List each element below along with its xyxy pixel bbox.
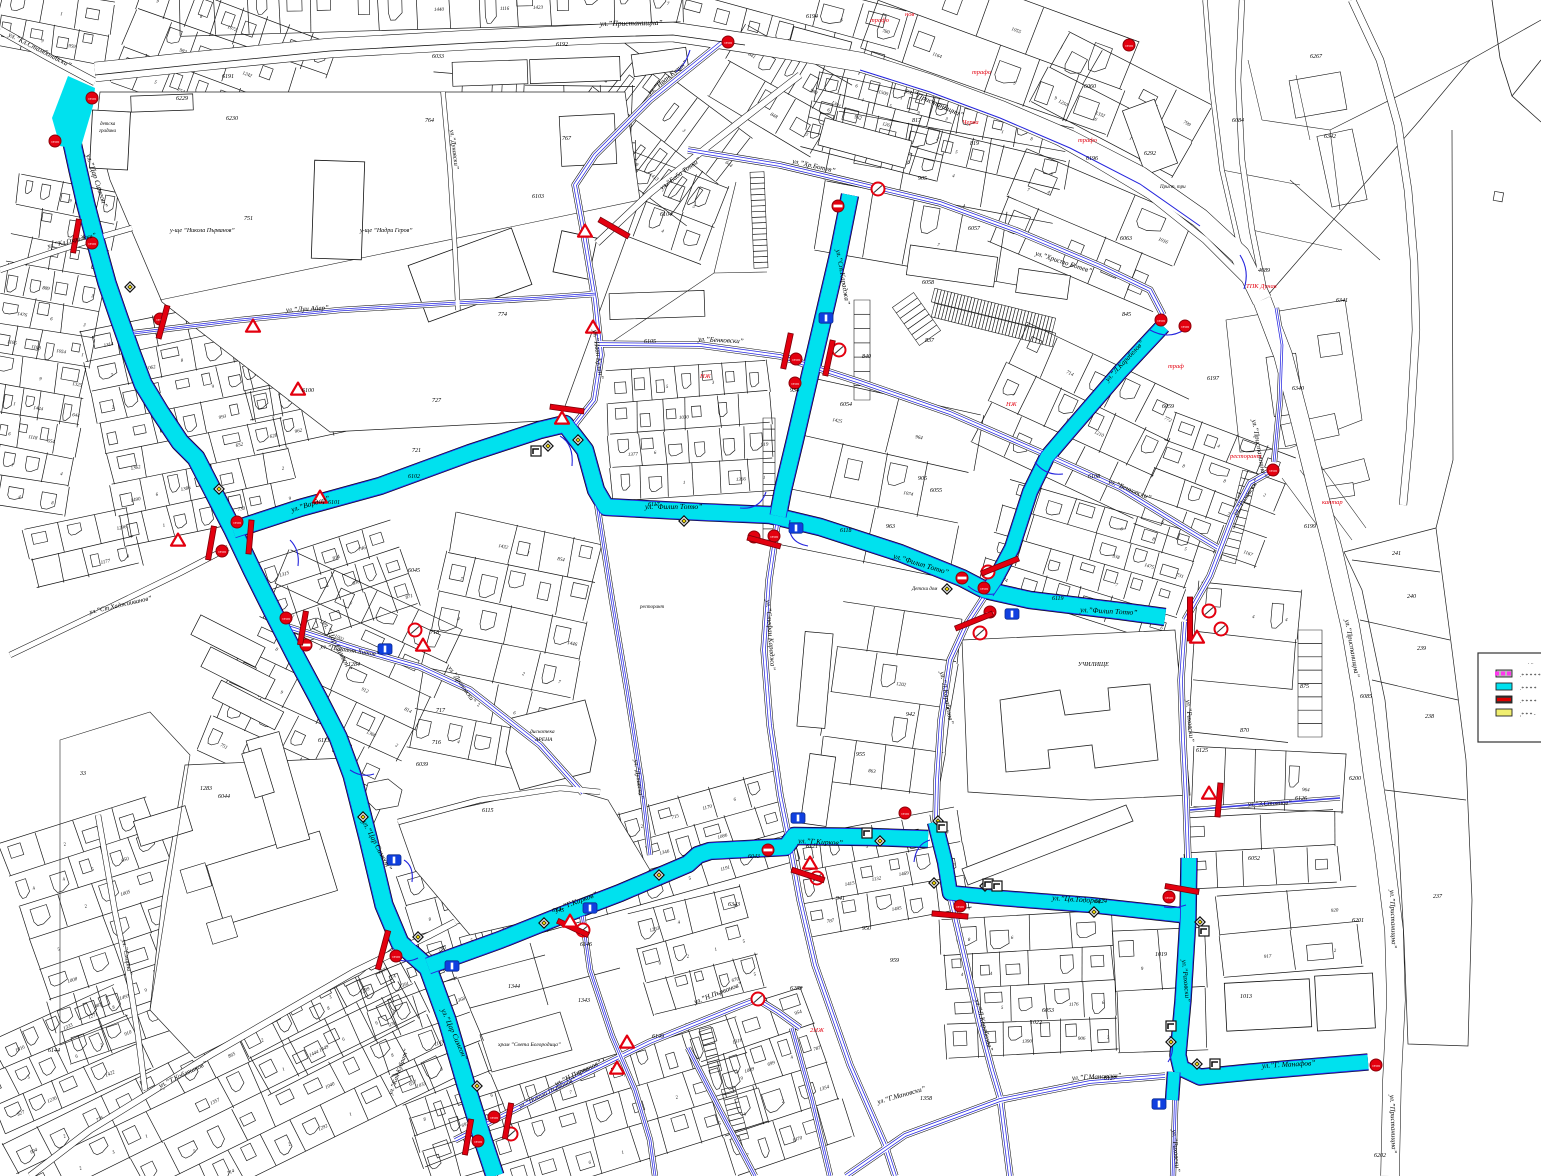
svg-text:237: 237	[1433, 894, 1443, 900]
svg-text:767: 767	[562, 136, 572, 142]
svg-text:6039: 6039	[416, 762, 428, 768]
svg-text:трафо: трафо	[1078, 137, 1098, 144]
svg-text:906: 906	[1078, 1037, 1086, 1042]
svg-text:963: 963	[886, 524, 895, 530]
svg-text:стоп: стоп	[1125, 44, 1132, 48]
svg-text:6084: 6084	[1232, 117, 1244, 124]
svg-text:845: 845	[1122, 311, 1131, 318]
svg-text:920: 920	[1331, 908, 1339, 914]
svg-text:6103: 6103	[532, 194, 544, 200]
svg-text:Черва: Черва	[962, 119, 979, 126]
svg-text:941: 941	[836, 895, 845, 902]
svg-text:6057: 6057	[968, 226, 981, 232]
svg-text:751: 751	[244, 216, 253, 222]
svg-text:стоп: стоп	[1269, 469, 1276, 473]
svg-text:стоп: стоп	[51, 140, 58, 144]
svg-text:6146: 6146	[580, 941, 592, 948]
svg-text:6341: 6341	[1336, 297, 1348, 304]
svg-text:1343: 1343	[578, 997, 590, 1004]
svg-text:718: 718	[430, 630, 439, 636]
svg-text:у-ще ”Никола Първанов”: у-ще ”Никола Първанов”	[169, 228, 235, 234]
svg-text:ресторант: ресторант	[639, 605, 664, 610]
svg-text:6119: 6119	[1052, 596, 1064, 602]
svg-text:.* * * * * *: .* * * * * *	[1520, 673, 1541, 679]
svg-text:дискотека: дискотека	[530, 728, 555, 735]
svg-text:стоп: стоп	[282, 617, 289, 621]
svg-text:стоп: стоп	[233, 521, 240, 525]
svg-text:6199: 6199	[1304, 524, 1316, 530]
svg-text:716: 716	[432, 740, 441, 746]
svg-text:6125: 6125	[1196, 748, 1208, 754]
svg-text:2НЖ: 2НЖ	[810, 1027, 825, 1034]
svg-text:АРЕНА: АРЕНА	[534, 737, 553, 743]
svg-text:6044: 6044	[218, 793, 230, 800]
svg-text:6101: 6101	[328, 500, 340, 506]
svg-text:964: 964	[1302, 788, 1310, 793]
svg-text:6033: 6033	[432, 54, 444, 60]
svg-text:6342: 6342	[1324, 133, 1336, 140]
svg-text:1390: 1390	[1022, 1039, 1033, 1045]
svg-text:238: 238	[1425, 714, 1434, 720]
svg-text:6085: 6085	[1360, 694, 1372, 700]
svg-text:241: 241	[1392, 550, 1401, 557]
svg-text:стоп: стоп	[88, 242, 95, 246]
svg-text:1284: 1284	[348, 661, 360, 668]
svg-text:трафо: трафо	[972, 69, 992, 76]
svg-text:1423: 1423	[533, 6, 544, 11]
svg-text:6055: 6055	[930, 488, 942, 494]
svg-text:6229: 6229	[176, 96, 188, 102]
svg-text:градина: градина	[99, 129, 116, 134]
svg-text:УЧИЛИЩЕ: УЧИЛИЩЕ	[1078, 662, 1109, 668]
svg-text:6063: 6063	[1120, 236, 1132, 242]
svg-text:239: 239	[1417, 646, 1426, 652]
svg-text:33: 33	[79, 771, 86, 777]
svg-text:1030: 1030	[679, 415, 690, 421]
svg-text:6340: 6340	[1292, 385, 1304, 392]
svg-text:стоп: стоп	[980, 587, 987, 591]
svg-text:храм ”Света Богородица”: храм ”Света Богородица”	[497, 1041, 561, 1048]
svg-text:6196: 6196	[1086, 156, 1098, 162]
svg-text:6149: 6149	[652, 1033, 664, 1040]
svg-text:6194: 6194	[806, 13, 818, 20]
svg-text:6267: 6267	[1310, 54, 1323, 60]
svg-text:,* * * -: ,* * * -	[1520, 712, 1536, 718]
svg-text:6124: 6124	[1095, 898, 1107, 905]
svg-text:917: 917	[1264, 954, 1272, 960]
svg-text:стоп: стоп	[1157, 319, 1164, 323]
svg-text:950: 950	[862, 926, 871, 932]
svg-text:стоп: стоп	[88, 97, 95, 101]
svg-text:1377: 1377	[628, 452, 639, 458]
svg-text:764: 764	[425, 117, 434, 124]
svg-text:875: 875	[1300, 684, 1309, 690]
svg-text:727: 727	[432, 398, 442, 404]
svg-text:6117: 6117	[648, 502, 661, 508]
svg-text:1440: 1440	[434, 8, 445, 13]
svg-text:1022: 1022	[1030, 1020, 1042, 1026]
svg-text:6104: 6104	[660, 211, 672, 218]
svg-text:стоп: стоп	[490, 1116, 497, 1120]
svg-text:6144: 6144	[48, 1047, 60, 1054]
svg-text:ресторант: ресторант	[1229, 453, 1262, 460]
svg-text:6100: 6100	[302, 388, 314, 394]
svg-text:6191: 6191	[222, 74, 234, 80]
svg-text:стоп: стоп	[1165, 896, 1172, 900]
svg-text:817: 817	[912, 118, 922, 124]
svg-text:стоп: стоп	[218, 550, 225, 554]
svg-text:. ..: . ..	[1528, 660, 1534, 666]
svg-text:1366: 1366	[736, 477, 747, 483]
svg-text:905: 905	[918, 176, 927, 182]
svg-text:Прист. три: Прист. три	[1159, 185, 1186, 190]
svg-text:стоп: стоп	[392, 955, 399, 959]
svg-text:1283: 1283	[200, 786, 212, 792]
svg-text:6043: 6043	[748, 853, 760, 860]
svg-text:6054: 6054	[840, 401, 852, 408]
svg-text:ул.”Пристанищна”: ул.”Пристанищна”	[599, 18, 663, 28]
svg-text:6127: 6127	[1104, 1076, 1117, 1082]
svg-text:стоп: стоп	[956, 905, 963, 909]
svg-text:6053: 6053	[1042, 1008, 1054, 1014]
svg-text:6343: 6343	[728, 901, 740, 908]
svg-text:1358: 1358	[920, 1096, 932, 1102]
svg-text:6045: 6045	[408, 567, 420, 574]
svg-text:819: 819	[970, 141, 979, 147]
svg-text:стоп: стоп	[792, 358, 799, 362]
svg-text:.* * * *: .* * * *	[1520, 699, 1537, 705]
svg-text:стоп: стоп	[474, 1140, 481, 1144]
svg-text:1: 1	[763, 476, 766, 481]
svg-text:240: 240	[1407, 593, 1416, 600]
svg-text:НЖ: НЖ	[1005, 401, 1018, 408]
svg-text:955: 955	[856, 752, 865, 758]
svg-text:959: 959	[890, 958, 899, 964]
svg-text:942: 942	[906, 711, 915, 718]
svg-text:6126: 6126	[1295, 796, 1307, 802]
svg-text:6201: 6201	[1352, 918, 1364, 924]
svg-text:.* * * *: .* * * *	[1520, 686, 1537, 692]
svg-text:6230: 6230	[226, 116, 238, 122]
svg-text:ТПК Дунав: ТПК Дунав	[1246, 283, 1277, 290]
svg-text:6102: 6102	[408, 474, 420, 480]
svg-text:4089: 4089	[1258, 267, 1270, 274]
svg-text:1: 1	[683, 481, 686, 486]
svg-text:6292: 6292	[1144, 151, 1156, 157]
svg-text:Детски дом: Детски дом	[911, 587, 938, 592]
svg-text:6192: 6192	[556, 42, 568, 48]
svg-text:6197: 6197	[1207, 376, 1220, 382]
svg-text:905: 905	[918, 476, 927, 482]
svg-text:721: 721	[412, 448, 421, 454]
svg-text:НЖ: НЖ	[699, 373, 712, 380]
svg-text:6060: 6060	[1084, 84, 1096, 90]
svg-text:6052: 6052	[1248, 856, 1260, 862]
svg-text:стоп: стоп	[791, 382, 798, 386]
svg-text:934: 934	[790, 387, 799, 394]
svg-text:детска: детска	[100, 122, 116, 127]
svg-text:1176: 1176	[1069, 1002, 1079, 1008]
svg-text:трафо: трафо	[870, 17, 890, 24]
svg-text:6105: 6105	[644, 339, 656, 345]
svg-text:1116: 1116	[500, 7, 510, 12]
svg-text:6200: 6200	[1349, 776, 1361, 782]
svg-text:1019: 1019	[1155, 952, 1167, 958]
svg-text:6121: 6121	[806, 844, 818, 850]
svg-text:6283: 6283	[790, 986, 802, 992]
svg-text:стоп: стоп	[1372, 1064, 1379, 1068]
svg-text:стоп: стоп	[724, 41, 731, 45]
svg-text:у-ще ”Надри Геров”: у-ще ”Надри Геров”	[359, 227, 413, 234]
svg-text:6113: 6113	[318, 738, 330, 744]
svg-text:717: 717	[436, 708, 446, 714]
svg-text:траф: траф	[1168, 363, 1184, 370]
svg-text:стоп: стоп	[1181, 325, 1188, 329]
svg-text:774: 774	[498, 311, 507, 318]
svg-text:нов: нов	[905, 11, 914, 18]
svg-text:1344: 1344	[508, 983, 520, 990]
svg-text:6108: 6108	[1088, 474, 1100, 480]
svg-text:стоп: стоп	[901, 812, 908, 816]
svg-text:919: 919	[761, 442, 769, 448]
svg-text:1013: 1013	[1240, 994, 1252, 1000]
svg-text:840: 840	[862, 353, 871, 360]
svg-text:837: 837	[925, 338, 935, 344]
svg-text:870: 870	[1240, 728, 1249, 734]
svg-text:6115: 6115	[482, 808, 494, 814]
svg-text:стоп: стоп	[770, 535, 777, 539]
svg-text:6145: 6145	[552, 907, 564, 914]
svg-text:кантар: кантар	[1322, 499, 1343, 506]
svg-text:6202: 6202	[1374, 1153, 1386, 1159]
svg-text:6118: 6118	[840, 528, 852, 534]
svg-text:6059: 6059	[1162, 404, 1174, 410]
svg-text:6058: 6058	[922, 280, 934, 286]
